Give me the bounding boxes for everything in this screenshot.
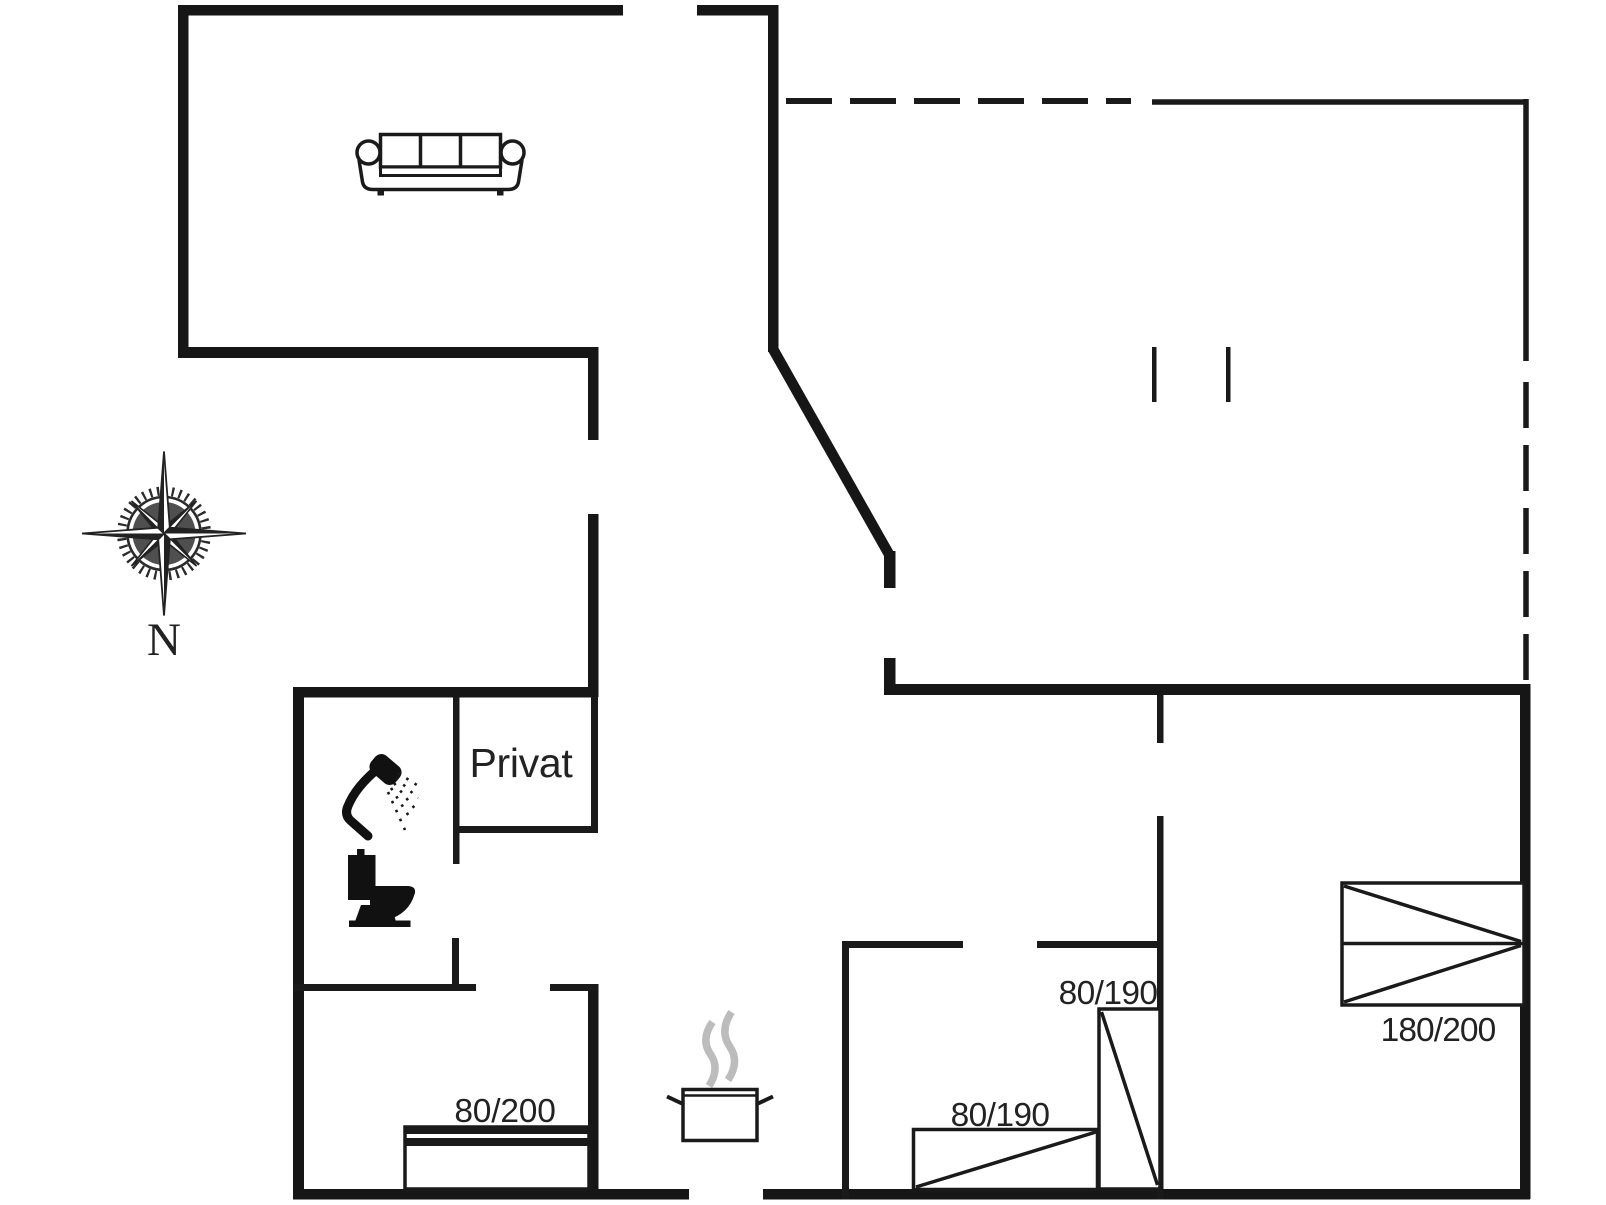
- svg-text:80/190: 80/190: [1059, 975, 1158, 1012]
- svg-text:Privat: Privat: [469, 740, 573, 786]
- svg-text:N: N: [147, 614, 181, 666]
- svg-text:180/200: 180/200: [1381, 1012, 1496, 1049]
- svg-text:80/200: 80/200: [454, 1093, 555, 1130]
- svg-text:80/190: 80/190: [951, 1097, 1050, 1134]
